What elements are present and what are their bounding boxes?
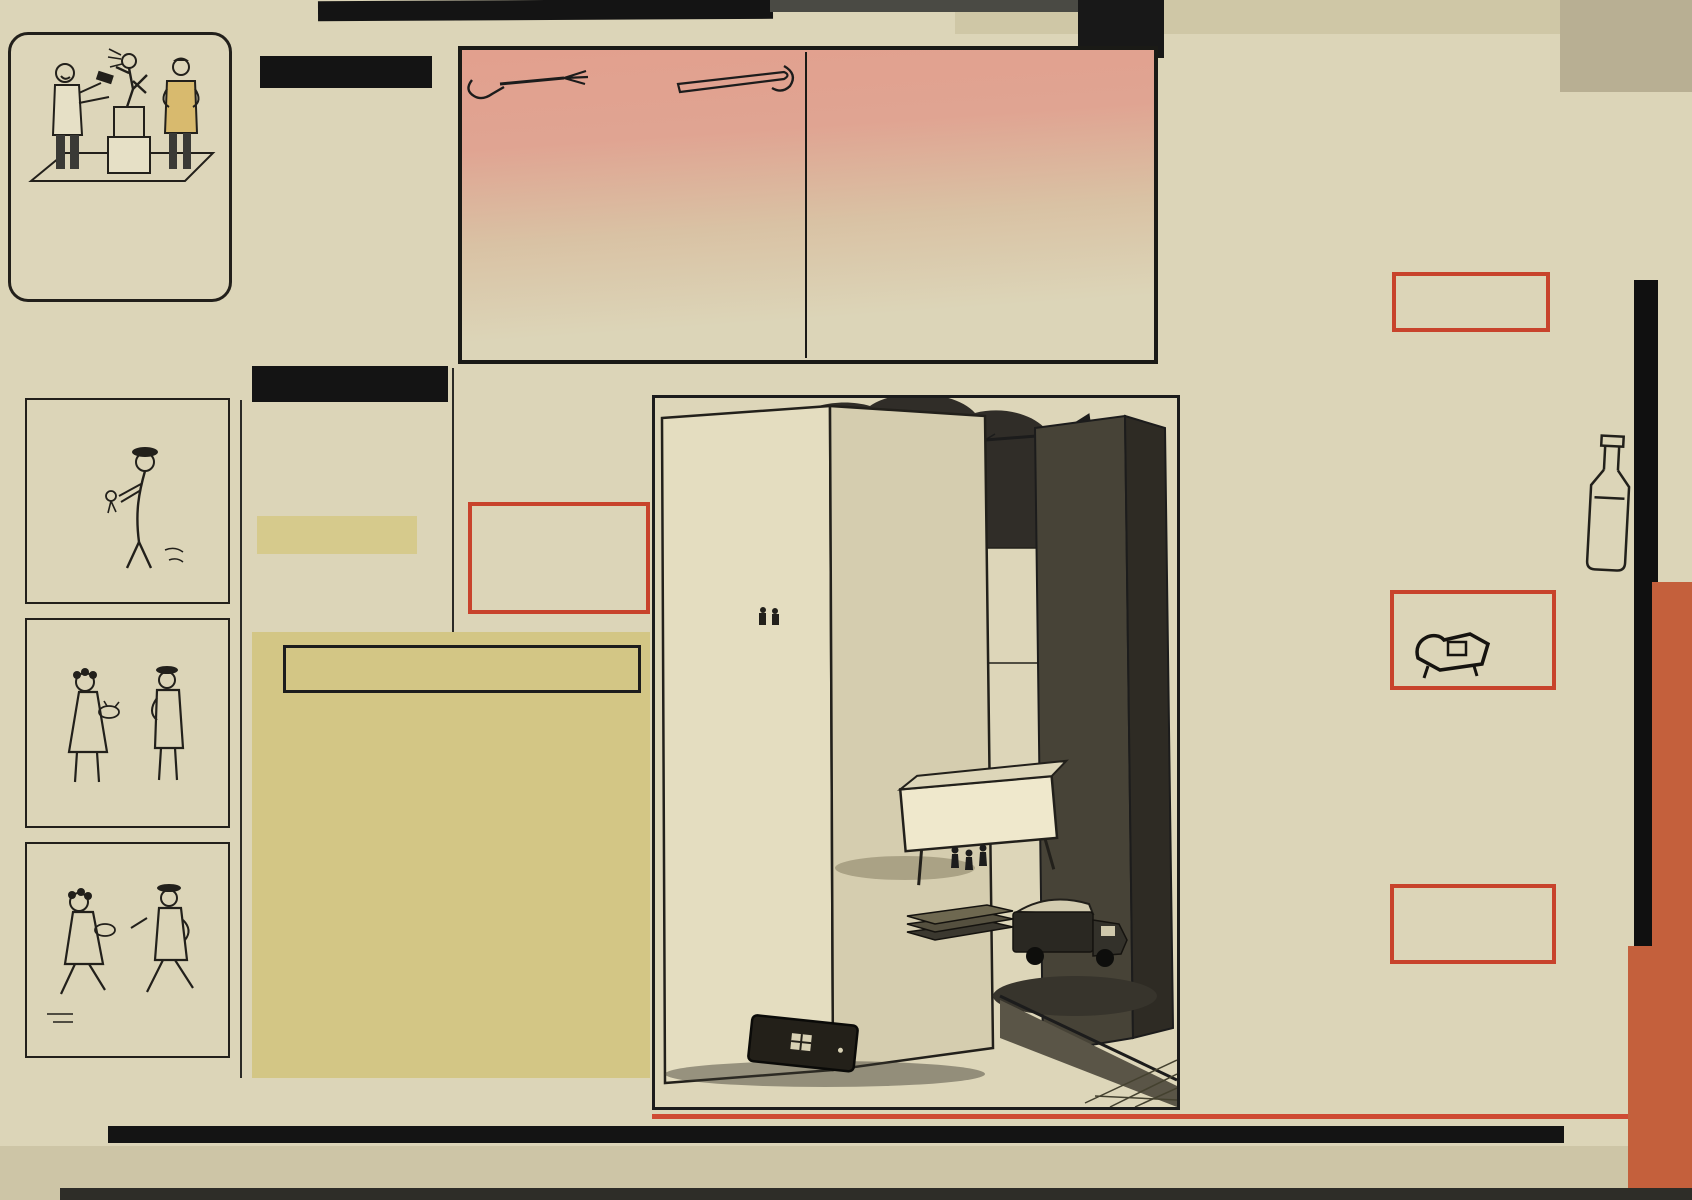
knife-icon [678,66,793,92]
newspaper-page [0,0,1692,1200]
scan-strip-black [318,0,773,21]
wacusiu-box-choroba [468,502,650,614]
left-building-face-b [830,406,993,1070]
lengren-cartoon-1 [27,400,227,601]
ink-doodle [1408,616,1504,680]
star-separator [264,704,638,711]
recipe-header-art [466,52,802,140]
wacusiu-text-adam [1394,888,1552,900]
lengren-cartoon-3 [27,844,227,1055]
illustration-box [652,395,1180,1110]
wacusiu-text-aktorki [1394,594,1552,606]
star-separator [264,774,638,781]
star-separator [264,746,638,753]
lengren-cartoon-2 [27,620,227,825]
star-separator [264,739,638,746]
section-header-nieslychane [260,56,432,88]
lengren-panel-1 [25,398,230,604]
star-separator [264,760,638,767]
humor-items [264,704,638,781]
right-building-side [1125,416,1173,1038]
fallen-door-panel [748,1015,858,1072]
scan-edge-top-right [1560,0,1692,92]
recipe-adults-column [814,55,1150,358]
scan-bottom-band [108,1126,1564,1143]
star-separator [264,753,638,760]
wacusiu-box-aktorki [1390,590,1556,690]
lengren-panel-3 [25,842,230,1058]
section-header-humor [283,645,641,693]
pzu-cartoon-panel [8,32,232,302]
lengren-panel-2 [25,618,230,828]
recipe-box [458,46,1158,364]
column-rule-middle [452,368,454,632]
section-header-kielecczyzna [252,366,448,402]
humor-section-background [252,632,650,1078]
column-rule-left [240,400,242,1078]
star-separator [264,718,638,725]
recipe-column-divider [805,52,807,358]
star-separator [264,767,638,774]
city-illustration [655,398,1177,1107]
left-building-face-a [662,406,833,1083]
scan-orange-band-lower [1628,946,1692,1200]
fork-icon [468,71,588,98]
star-separator [264,711,638,718]
star-separator [264,725,638,732]
scan-bottom-edge [60,1188,1692,1200]
red-divider-line [652,1114,1692,1119]
star-separator [264,732,638,739]
wacusiu-text-skrot [1396,276,1546,288]
pzu-cartoon-illustration [13,37,227,187]
wacusiu-box-adam [1390,884,1556,964]
right-building-face [1035,416,1133,1053]
section-header-dyplomata [257,516,417,554]
poem-body [1237,149,1577,162]
wacusiu-box-skrot [1392,272,1550,332]
wacusiu-text-choroba [472,506,646,518]
